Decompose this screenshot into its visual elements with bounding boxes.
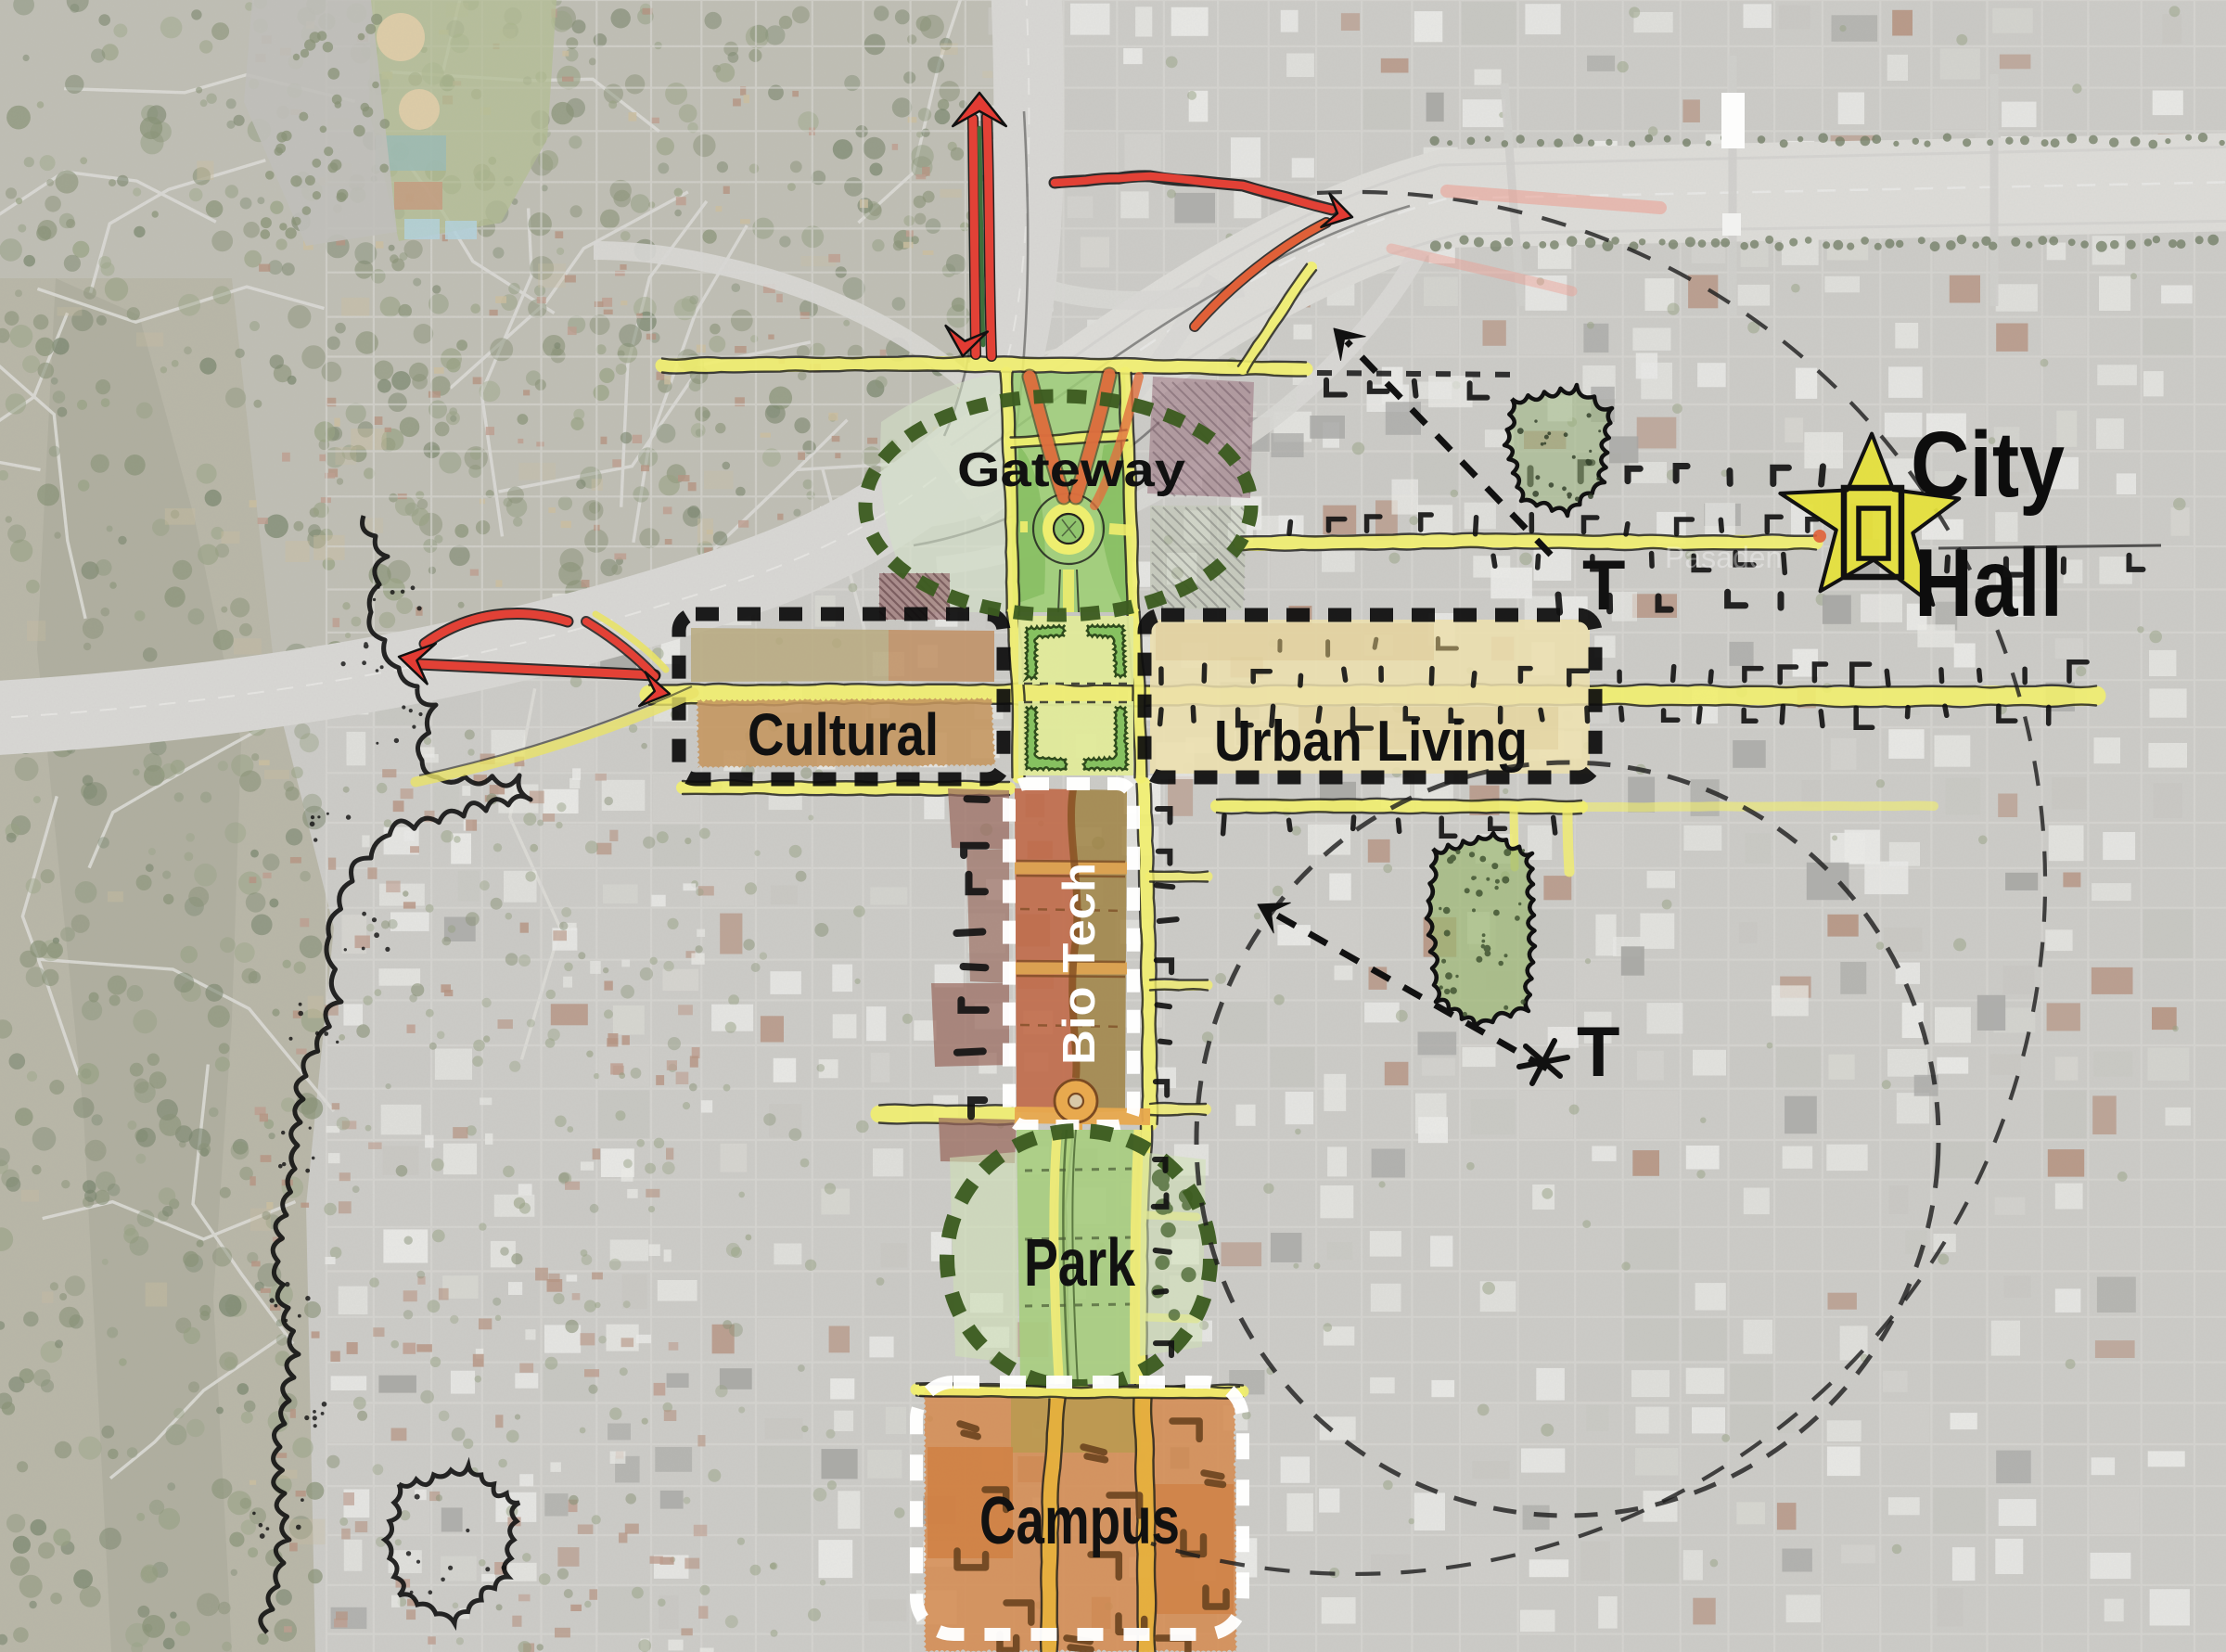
svg-text:Urban Living: Urban Living <box>1214 710 1528 774</box>
svg-text:Bio Tech: Bio Tech <box>1055 863 1105 1065</box>
svg-text:Pasaden: Pasaden <box>1665 541 1782 574</box>
svg-text:Cultural: Cultural <box>748 701 939 768</box>
svg-text:T: T <box>1577 1013 1619 1092</box>
svg-text:Park: Park <box>1024 1226 1136 1300</box>
svg-text:T: T <box>1582 546 1625 625</box>
svg-text:Gateway: Gateway <box>957 443 1185 497</box>
svg-text:Campus: Campus <box>979 1484 1180 1558</box>
svg-text:City: City <box>1911 413 2065 517</box>
